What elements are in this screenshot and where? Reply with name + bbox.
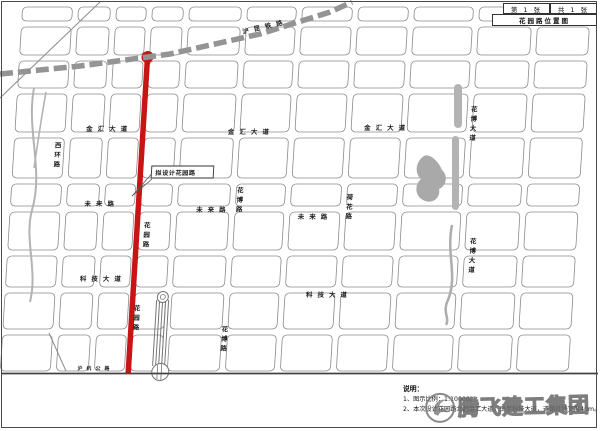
city-block bbox=[150, 27, 183, 55]
city-block bbox=[392, 335, 453, 371]
city-block bbox=[280, 335, 332, 371]
city-block bbox=[341, 256, 393, 287]
city-block bbox=[298, 61, 350, 88]
sheet-number-cell: 第 1 张 bbox=[503, 3, 550, 14]
city-block bbox=[292, 138, 344, 178]
note-line-2: 2、本次设计花园路北起金汇大道，南至科技大道，道路红线宽度40m。 bbox=[403, 405, 597, 415]
roundabout-north bbox=[157, 292, 169, 303]
city-block bbox=[175, 212, 229, 250]
city-block bbox=[170, 293, 224, 329]
city-block bbox=[521, 256, 575, 287]
street-label-keji-2: 科技大道 bbox=[306, 290, 353, 299]
city-block bbox=[348, 138, 400, 178]
city-block bbox=[228, 293, 279, 329]
city-block bbox=[112, 61, 144, 88]
street-grid: 拟设计花园路 花园路 花园路 花博大道 花博大道 西环路 荷花路 花博路 花博路… bbox=[0, 7, 591, 381]
city-block bbox=[336, 335, 388, 371]
note-line-1: 1、图示比例：1:10000。 bbox=[403, 395, 597, 405]
city-block bbox=[237, 138, 288, 178]
street-label-weilai-2: 未来路 bbox=[196, 205, 231, 214]
city-block bbox=[22, 7, 73, 21]
city-block bbox=[148, 61, 181, 88]
city-block bbox=[358, 7, 409, 21]
city-block bbox=[182, 94, 236, 132]
city-block bbox=[177, 184, 230, 206]
city-block bbox=[140, 184, 172, 206]
city-block bbox=[412, 27, 473, 55]
canal-strip-2 bbox=[452, 136, 459, 210]
city-block bbox=[300, 27, 352, 55]
city-block bbox=[285, 256, 337, 287]
city-block bbox=[475, 61, 530, 88]
sheet-title: 花园路位置图 bbox=[492, 14, 597, 26]
city-block bbox=[460, 293, 515, 329]
city-block bbox=[240, 94, 291, 132]
city-block bbox=[528, 138, 582, 178]
city-block bbox=[233, 212, 284, 250]
city-block bbox=[414, 7, 474, 21]
city-block bbox=[467, 184, 521, 206]
city-block bbox=[167, 335, 221, 371]
city-block bbox=[152, 7, 184, 21]
city-block bbox=[534, 61, 588, 88]
city-block bbox=[0, 335, 52, 371]
city-block bbox=[469, 138, 524, 178]
notes-block: 说明： 1、图示比例：1:10000。 2、本次设计花园路北起金汇大道，南至科技… bbox=[403, 383, 597, 415]
city-block bbox=[172, 256, 226, 287]
city-block bbox=[189, 7, 242, 21]
city-block bbox=[59, 293, 93, 329]
street-label-keji-1: 科技大道 bbox=[80, 274, 127, 283]
city-block bbox=[346, 184, 397, 206]
city-block bbox=[457, 335, 512, 371]
city-block bbox=[18, 61, 70, 88]
city-block bbox=[519, 293, 573, 329]
city-block bbox=[536, 27, 590, 55]
title-block: 第 1 张 共 1 张 花园路位置图 bbox=[503, 3, 597, 26]
city-block bbox=[8, 212, 60, 250]
street-label-bottom-road: 沪杭公路 bbox=[77, 365, 113, 372]
city-block bbox=[3, 293, 55, 329]
city-block bbox=[472, 94, 527, 132]
city-block bbox=[354, 61, 406, 88]
city-block bbox=[97, 293, 129, 329]
city-block bbox=[243, 61, 294, 88]
canal-strip-1 bbox=[454, 84, 462, 128]
sheet-total-cell: 共 1 张 bbox=[550, 3, 597, 14]
city-block bbox=[516, 335, 570, 371]
city-block bbox=[76, 27, 110, 55]
street-label-huabolu-1: 花博路 bbox=[234, 186, 244, 216]
roundabout-south bbox=[151, 364, 169, 381]
city-block bbox=[524, 212, 578, 250]
city-block bbox=[68, 138, 102, 178]
city-block bbox=[135, 256, 168, 287]
route-callout-label: 拟设计花园路 bbox=[155, 169, 196, 177]
city-block bbox=[106, 138, 138, 178]
street-label-jinhui-2: 金汇大道 bbox=[227, 127, 275, 136]
city-block bbox=[397, 256, 458, 287]
drawing-sheet: 拟设计花园路 花园路 花园路 花博大道 花博大道 西环路 荷花路 花博路 花博路… bbox=[0, 0, 600, 431]
city-block bbox=[477, 27, 532, 55]
city-block bbox=[531, 94, 585, 132]
city-block bbox=[225, 335, 276, 371]
city-block bbox=[247, 7, 297, 21]
city-block bbox=[114, 27, 146, 55]
city-block bbox=[64, 212, 98, 250]
city-block bbox=[116, 7, 147, 21]
street-label-jinhui-1: 金汇大道 bbox=[85, 124, 133, 133]
street-label-weilai-1: 未来路 bbox=[84, 199, 119, 208]
city-block bbox=[185, 61, 239, 88]
city-block bbox=[290, 184, 341, 206]
street-label-weilai-3: 未来路 bbox=[297, 212, 332, 221]
notes-heading: 说明： bbox=[403, 383, 597, 393]
city-block bbox=[102, 212, 134, 250]
location-map: 拟设计花园路 花园路 花园路 花博大道 花博大道 西环路 荷花路 花博路 花博路… bbox=[0, 0, 600, 431]
city-block bbox=[526, 184, 579, 206]
street-label-jinhui-3: 金汇大道 bbox=[363, 123, 411, 132]
city-block bbox=[20, 27, 72, 55]
city-block bbox=[295, 94, 347, 132]
city-block bbox=[230, 256, 281, 287]
city-block bbox=[410, 61, 471, 88]
city-block bbox=[145, 94, 178, 132]
city-block bbox=[356, 27, 408, 55]
